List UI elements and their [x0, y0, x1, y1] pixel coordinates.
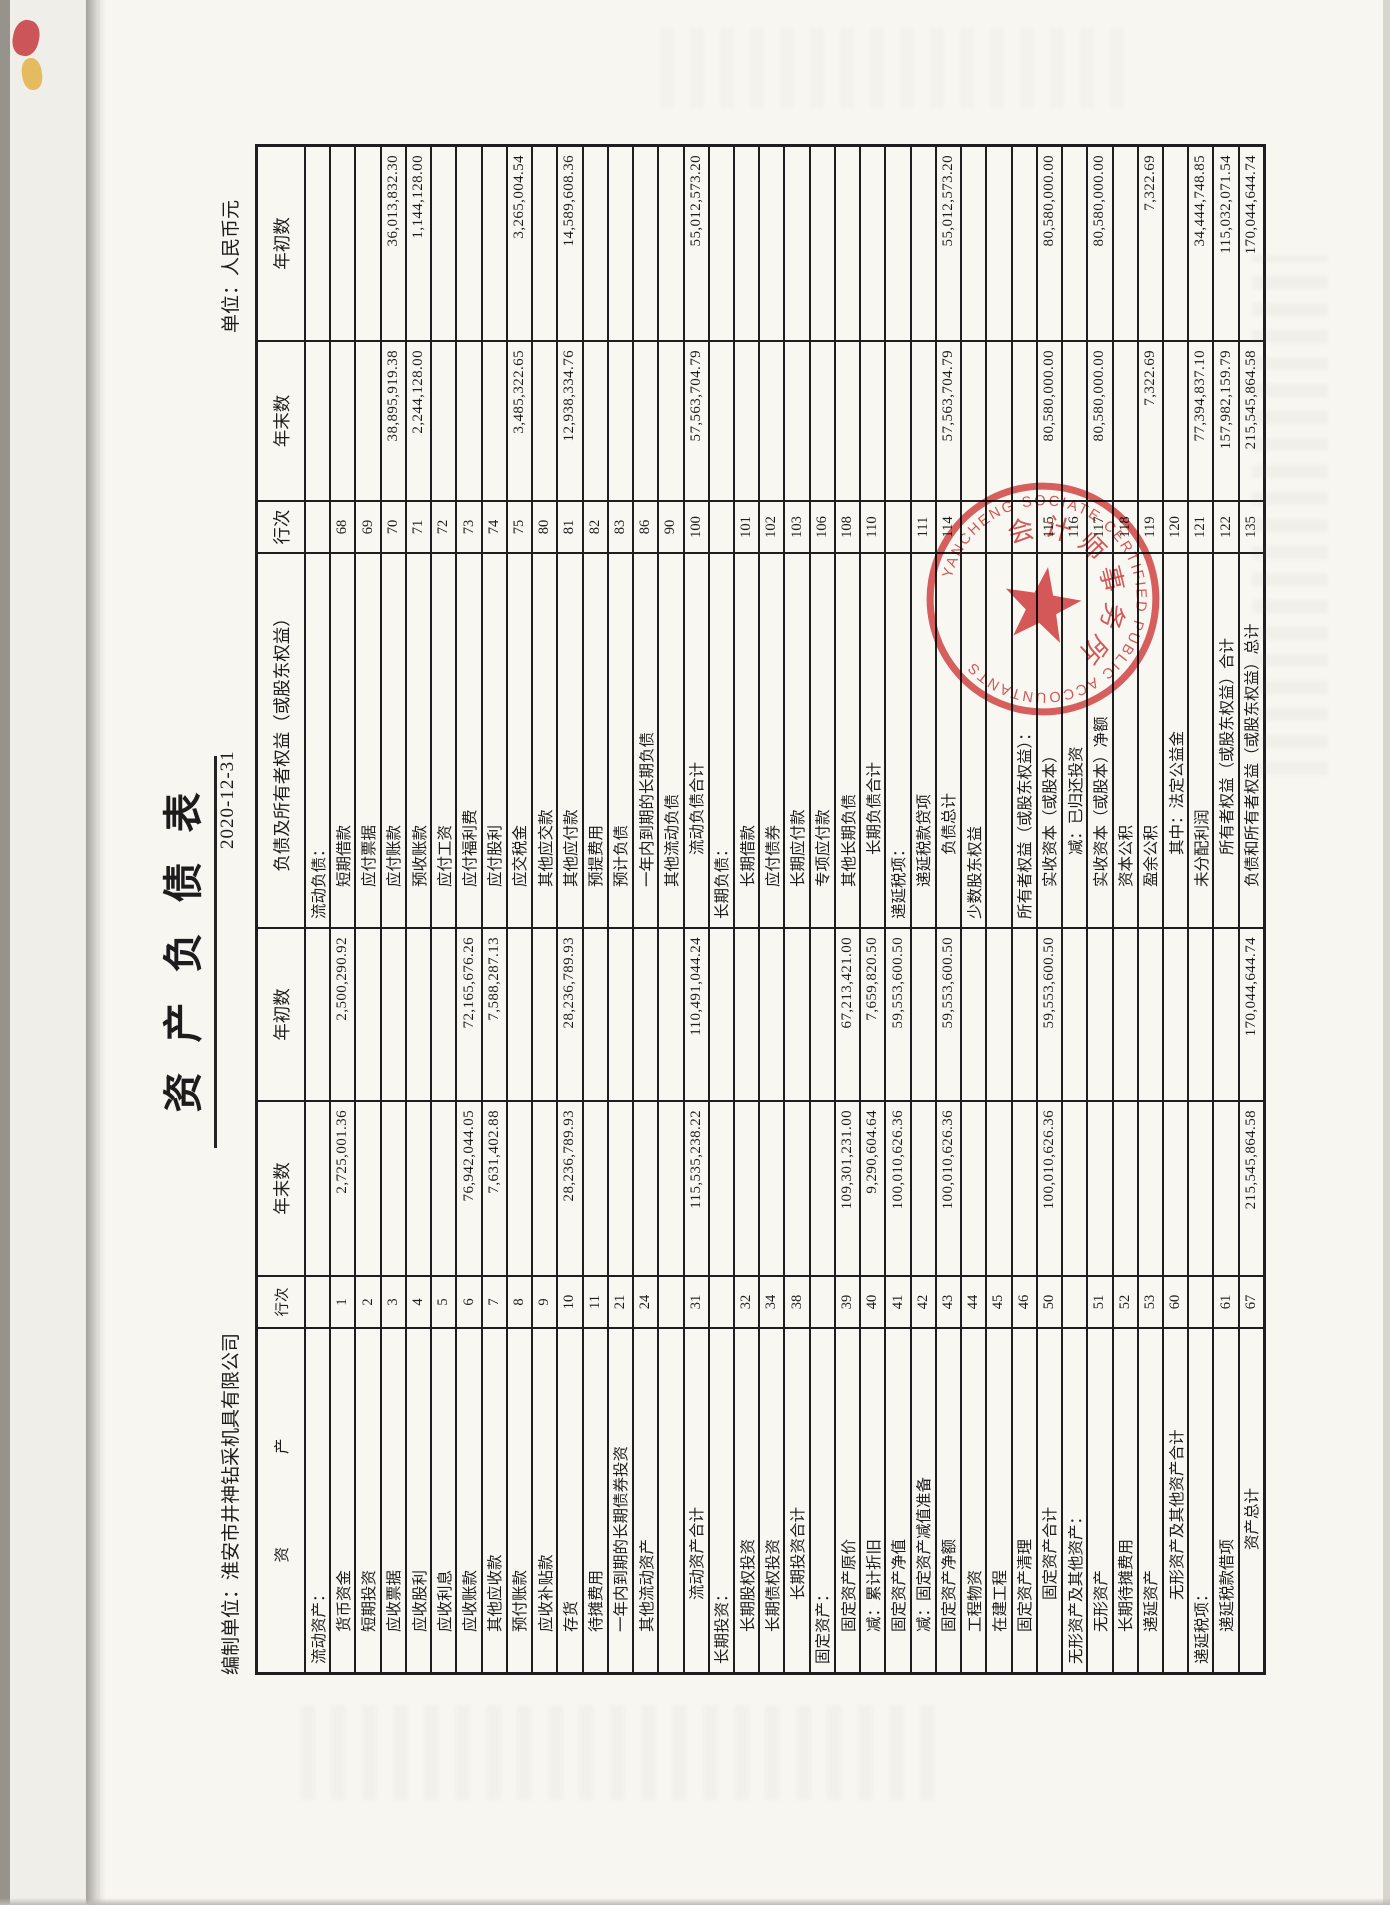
asset-line-no-cell: 11 — [584, 1275, 607, 1327]
asset-line-no-cell: 9 — [533, 1275, 556, 1327]
liability-name-cell: 应付账款 — [382, 552, 405, 927]
asset-year-begin-cell: 59,553,600.50 — [937, 927, 960, 1100]
asset-line-no-cell: 45 — [987, 1275, 1010, 1327]
asset-name-cell: 预付账款 — [508, 1327, 531, 1672]
asset-name-cell: 递延资产 — [1139, 1327, 1162, 1672]
asset-name-cell: 固定资产净额 — [937, 1327, 960, 1672]
liability-name-cell: 预提费用 — [584, 552, 607, 927]
asset-year-begin-cell — [1013, 927, 1036, 1100]
table-row: 递延税项：未分配利润12177,394,837.1034,444,748.85 — [1189, 147, 1214, 1672]
asset-line-no-cell: 8 — [508, 1275, 531, 1327]
liability-year-begin-cell: 7,322.69 — [1139, 147, 1162, 340]
liability-line-no-cell — [306, 500, 329, 552]
scan-edge-left — [0, 0, 10, 1905]
asset-year-end-cell — [760, 1100, 783, 1275]
liability-year-begin-cell — [533, 147, 556, 340]
fold-shadow — [86, 0, 106, 1905]
asset-year-end-cell: 100,010,626.36 — [886, 1100, 909, 1275]
asset-year-end-cell: 115,535,238.22 — [685, 1100, 708, 1275]
liability-name-cell: 长期负债合计 — [861, 552, 884, 927]
liability-name-cell: 流动负债合计 — [685, 552, 708, 927]
liability-name-cell: 应付票据 — [356, 552, 379, 927]
table-row: 应收账款676,942,044.0572,165,676.26应付福利费73 — [457, 147, 482, 1672]
liability-line-no-cell: 73 — [457, 500, 480, 552]
scanned-page: 资产负债表 编制单位：淮安市井神钻采机具有限公司 2020-12-31 单位：人… — [0, 0, 1390, 1905]
asset-name-cell: 固定资产： — [811, 1327, 834, 1672]
asset-line-no-cell: 24 — [634, 1275, 657, 1327]
asset-year-begin-cell: 7,659,820.50 — [861, 927, 884, 1100]
table-row: 短期投资2应付票据69 — [356, 147, 381, 1672]
asset-name-cell: 固定资产原价 — [836, 1327, 859, 1672]
liability-line-no-cell: 83 — [609, 500, 632, 552]
table-row: 一年内到期的长期债券投资21预计负债83 — [609, 147, 634, 1672]
asset-year-end-cell — [1088, 1100, 1111, 1275]
asset-year-end-cell: 215,545,864.58 — [1240, 1100, 1263, 1275]
header-liability: 负债及所有者权益（或股东权益） — [258, 552, 304, 927]
asset-year-end-cell: 109,301,231.00 — [836, 1100, 859, 1275]
liability-year-end-cell: 2,244,128.00 — [407, 340, 430, 500]
asset-year-begin-cell — [962, 927, 985, 1100]
liability-name-cell: 长期负债： — [710, 552, 733, 927]
liability-line-no-cell: 82 — [584, 500, 607, 552]
asset-line-no-cell — [811, 1275, 834, 1327]
asset-name-cell: 工程物资 — [962, 1327, 985, 1672]
asset-year-begin-cell — [659, 927, 682, 1100]
asset-name-cell: 长期股权投资 — [735, 1327, 758, 1672]
asset-line-no-cell: 10 — [558, 1275, 581, 1327]
liability-year-begin-cell: 34,444,748.85 — [1189, 147, 1212, 340]
asset-year-begin-cell: 72,165,676.26 — [457, 927, 480, 1100]
liability-year-end-cell: 38,895,919.38 — [382, 340, 405, 500]
asset-year-begin-cell: 67,213,421.00 — [836, 927, 859, 1100]
page-curl-margin — [10, 0, 88, 1905]
asset-year-end-cell — [407, 1100, 430, 1275]
asset-year-begin-cell — [584, 927, 607, 1100]
liability-name-cell: 专项应付款 — [811, 552, 834, 927]
table-row: 其他流动资产24一年内到期的长期负债86 — [634, 147, 659, 1672]
liability-year-begin-cell — [584, 147, 607, 340]
asset-year-begin-cell — [382, 927, 405, 1100]
liability-name-cell: 应付债券 — [760, 552, 783, 927]
liability-year-begin-cell: 55,012,573.20 — [937, 147, 960, 340]
liability-year-begin-cell — [1164, 147, 1187, 340]
asset-year-begin-cell — [1139, 927, 1162, 1100]
asset-year-begin-cell — [811, 927, 834, 1100]
asset-name-cell: 其他流动资产 — [634, 1327, 657, 1672]
liability-year-begin-cell: 1,144,128.00 — [407, 147, 430, 340]
liability-name-cell: 预计负债 — [609, 552, 632, 927]
liability-line-no-cell: 71 — [407, 500, 430, 552]
header-liability-year-begin: 年初数 — [258, 147, 304, 340]
seal-star-icon — [999, 561, 1086, 645]
table-row: 待摊费用11预提费用82 — [584, 147, 609, 1672]
asset-name-cell: 流动资产： — [306, 1327, 329, 1672]
table-row: 减：固定资产减值准备42递延税款贷项111 — [912, 147, 937, 1672]
liability-year-end-cell: 57,563,704.79 — [685, 340, 708, 500]
asset-line-no-cell: 31 — [685, 1275, 708, 1327]
liability-name-cell: 负债和所有者权益（或股东权益）总计 — [1240, 552, 1263, 927]
table-row: 固定资产原价39109,301,231.0067,213,421.00其他长期负… — [836, 147, 861, 1672]
asset-year-end-cell — [811, 1100, 834, 1275]
asset-year-begin-cell — [407, 927, 430, 1100]
liability-year-end-cell — [609, 340, 632, 500]
liability-year-end-cell — [886, 340, 909, 500]
liability-year-end-cell — [432, 340, 455, 500]
asset-year-begin-cell — [1088, 927, 1111, 1100]
liability-line-no-cell: 80 — [533, 500, 556, 552]
liability-year-begin-cell — [306, 147, 329, 340]
liability-year-end-cell: 3,485,322.65 — [508, 340, 531, 500]
asset-year-begin-cell — [609, 927, 632, 1100]
table-row: 应收利息5应付工资72 — [432, 147, 457, 1672]
currency-unit: 单位：人民币元 — [216, 200, 243, 333]
asset-year-begin-cell — [1189, 927, 1212, 1100]
liability-line-no-cell: 110 — [861, 500, 884, 552]
liability-year-begin-cell: 55,012,573.20 — [685, 147, 708, 340]
asset-year-begin-cell — [735, 927, 758, 1100]
asset-line-no-cell — [1189, 1275, 1212, 1327]
liability-name-cell: 流动负债： — [306, 552, 329, 927]
liability-year-begin-cell — [836, 147, 859, 340]
header-asset-line-no: 行次 — [258, 1275, 304, 1327]
asset-year-begin-cell — [634, 927, 657, 1100]
asset-name-cell: 一年内到期的长期债券投资 — [609, 1327, 632, 1672]
liability-name-cell: 长期应付款 — [785, 552, 808, 927]
asset-line-no-cell: 46 — [1013, 1275, 1036, 1327]
asset-name-cell: 应收账款 — [457, 1327, 480, 1672]
asset-year-begin-cell — [710, 927, 733, 1100]
asset-year-end-cell: 100,010,626.36 — [937, 1100, 960, 1275]
asset-year-begin-cell — [760, 927, 783, 1100]
asset-name-cell: 固定资产清理 — [1013, 1327, 1036, 1672]
asset-year-end-cell — [962, 1100, 985, 1275]
asset-line-no-cell: 43 — [937, 1275, 960, 1327]
table-row: 长期投资：长期负债： — [710, 147, 735, 1672]
table-row: 工程物资44少数股东权益 — [962, 147, 987, 1672]
scan-edge-right — [1383, 0, 1390, 1905]
liability-year-begin-cell — [785, 147, 808, 340]
asset-year-begin-cell — [912, 927, 935, 1100]
liability-name-cell: 其他流动负债 — [659, 552, 682, 927]
balance-sheet-table: 资 产 行次 年末数 年初数 负债及所有者权益（或股东权益） 行次 年末数 年初… — [255, 144, 1266, 1675]
liability-year-end-cell — [1114, 340, 1137, 500]
table-row: 应收股利4预收账款712,244,128.001,144,128.00 — [407, 147, 432, 1672]
asset-year-end-cell: 2,725,001.36 — [331, 1100, 354, 1275]
liability-year-begin-cell: 36,013,832.30 — [382, 147, 405, 340]
asset-year-begin-cell: 2,500,290.92 — [331, 927, 354, 1100]
asset-year-end-cell — [1214, 1100, 1237, 1275]
liability-year-end-cell — [634, 340, 657, 500]
header-liability-year-end: 年末数 — [258, 340, 304, 500]
asset-name-cell: 流动资产合计 — [685, 1327, 708, 1672]
liability-year-begin-cell — [962, 147, 985, 340]
liability-year-end-cell — [584, 340, 607, 500]
liability-year-end-cell: 77,394,837.10 — [1189, 340, 1212, 500]
table-row: 其他应收款77,631,402.887,588,287.13应付股利74 — [483, 147, 508, 1672]
asset-year-begin-cell — [356, 927, 379, 1100]
asset-year-begin-cell — [987, 927, 1010, 1100]
liability-line-no-cell: 135 — [1240, 500, 1263, 552]
table-row: 无形资产及其他资产合计60其中：法定公益金120 — [1164, 147, 1189, 1672]
liability-year-end-cell — [735, 340, 758, 500]
liability-year-begin-cell — [659, 147, 682, 340]
asset-line-no-cell: 34 — [760, 1275, 783, 1327]
balance-sheet-document: 资产负债表 编制单位：淮安市井神钻采机具有限公司 2020-12-31 单位：人… — [85, 0, 1390, 1905]
liability-year-begin-cell — [710, 147, 733, 340]
header-asset: 资 产 — [258, 1327, 304, 1672]
asset-line-no-cell: 40 — [861, 1275, 884, 1327]
asset-line-no-cell: 1 — [331, 1275, 354, 1327]
asset-year-begin-cell — [508, 927, 531, 1100]
table-row: 无形资产51实收资本（或股本）净额11780,580,000.0080,580,… — [1088, 147, 1113, 1672]
table-row: 长期待摊费用52资本公积118 — [1114, 147, 1139, 1672]
liability-year-begin-cell — [886, 147, 909, 340]
asset-name-cell: 应收利息 — [432, 1327, 455, 1672]
asset-name-cell: 货币资金 — [331, 1327, 354, 1672]
header-asset-year-end: 年末数 — [258, 1100, 304, 1275]
asset-year-end-cell — [356, 1100, 379, 1275]
asset-year-begin-cell: 170,044,644.74 — [1240, 927, 1263, 1100]
table-row: 固定资产净值41100,010,626.3659,553,600.50递延税项： — [886, 147, 911, 1672]
asset-name-cell: 长期待摊费用 — [1114, 1327, 1137, 1672]
asset-line-no-cell: 41 — [886, 1275, 909, 1327]
asset-year-end-cell — [1189, 1100, 1212, 1275]
asset-line-no-cell: 38 — [785, 1275, 808, 1327]
asset-year-end-cell — [1139, 1100, 1162, 1275]
table-row: 固定资产清理46所有者权益（或股东权益）： — [1013, 147, 1038, 1672]
liability-name-cell: 应付工资 — [432, 552, 455, 927]
liability-line-no-cell: 102 — [760, 500, 783, 552]
liability-year-begin-cell — [861, 147, 884, 340]
liability-name-cell: 递延税项： — [886, 552, 909, 927]
prepared-by: 编制单位：淮安市井神钻采机具有限公司 — [216, 1333, 243, 1675]
asset-line-no-cell: 67 — [1240, 1275, 1263, 1327]
asset-name-cell: 短期投资 — [356, 1327, 379, 1672]
table-row: 流动资产：流动负债： — [306, 147, 331, 1672]
liability-name-cell: 短期借款 — [331, 552, 354, 927]
asset-line-no-cell: 5 — [432, 1275, 455, 1327]
liability-year-end-cell — [483, 340, 506, 500]
liability-year-begin-cell: 80,580,000.00 — [1088, 147, 1111, 340]
asset-line-no-cell: 53 — [1139, 1275, 1162, 1327]
liability-year-end-cell: 157,982,159.79 — [1214, 340, 1237, 500]
table-row: 固定资产净额43100,010,626.3659,553,600.50负债总计1… — [937, 147, 962, 1672]
asset-year-end-cell — [735, 1100, 758, 1275]
table-row: 长期股权投资32长期借款101 — [735, 147, 760, 1672]
asset-line-no-cell: 42 — [912, 1275, 935, 1327]
liability-line-no-cell: 69 — [356, 500, 379, 552]
liability-line-no-cell: 122 — [1214, 500, 1237, 552]
asset-year-end-cell: 9,290,604.64 — [861, 1100, 884, 1275]
liability-year-end-cell: 12,938,334.76 — [558, 340, 581, 500]
asset-year-begin-cell — [785, 927, 808, 1100]
liability-name-cell: 所有者权益（或股东权益）合计 — [1214, 552, 1237, 927]
asset-year-end-cell: 76,942,044.05 — [457, 1100, 480, 1275]
prepared-by-label: 编制单位： — [221, 1580, 242, 1675]
asset-year-begin-cell: 7,588,287.13 — [483, 927, 506, 1100]
liability-line-no-cell: 86 — [634, 500, 657, 552]
asset-year-end-cell — [634, 1100, 657, 1275]
asset-line-no-cell: 3 — [382, 1275, 405, 1327]
table-row: 在建工程45 — [987, 147, 1012, 1672]
liability-year-begin-cell: 80,580,000.00 — [1038, 147, 1061, 340]
asset-year-end-cell — [912, 1100, 935, 1275]
liability-year-begin-cell: 170,044,644.74 — [1240, 147, 1263, 340]
liability-line-no-cell — [710, 500, 733, 552]
page-title-text: 资产负债表 — [151, 757, 217, 1149]
liability-year-end-cell — [785, 340, 808, 500]
liability-line-no-cell: 75 — [508, 500, 531, 552]
table-row: 流动资产合计31115,535,238.22110,491,044.24流动负债… — [685, 147, 710, 1672]
asset-name-cell: 长期债权投资 — [760, 1327, 783, 1672]
liability-year-end-cell — [659, 340, 682, 500]
asset-year-begin-cell — [306, 927, 329, 1100]
liability-line-no-cell: 100 — [685, 500, 708, 552]
liability-year-begin-cell — [483, 147, 506, 340]
asset-line-no-cell: 6 — [457, 1275, 480, 1327]
asset-year-end-cell — [533, 1100, 556, 1275]
liability-line-no-cell: 81 — [558, 500, 581, 552]
asset-year-end-cell — [1013, 1100, 1036, 1275]
liability-line-no-cell: 106 — [811, 500, 834, 552]
asset-name-cell: 递延税项： — [1189, 1327, 1212, 1672]
liability-year-begin-cell — [331, 147, 354, 340]
asset-year-end-cell — [1164, 1100, 1187, 1275]
asset-year-end-cell — [432, 1100, 455, 1275]
table-row: 货币资金12,725,001.362,500,290.92短期借款68 — [331, 147, 356, 1672]
asset-line-no-cell: 51 — [1088, 1275, 1111, 1327]
liability-line-no-cell: 90 — [659, 500, 682, 552]
table-row: 资产总计67215,545,864.58170,044,644.74负债和所有者… — [1240, 147, 1263, 1672]
asset-year-end-cell — [710, 1100, 733, 1275]
liability-line-no-cell: 103 — [785, 500, 808, 552]
liability-year-begin-cell — [1063, 147, 1086, 340]
asset-line-no-cell: 44 — [962, 1275, 985, 1327]
asset-year-end-cell — [609, 1100, 632, 1275]
liability-line-no-cell: 68 — [331, 500, 354, 552]
liability-year-end-cell — [331, 340, 354, 500]
liability-year-end-cell — [811, 340, 834, 500]
liability-year-begin-cell: 14,589,608.36 — [558, 147, 581, 340]
liability-line-no-cell: 74 — [483, 500, 506, 552]
asset-line-no-cell — [306, 1275, 329, 1327]
asset-year-begin-cell — [1063, 927, 1086, 1100]
asset-line-no-cell: 2 — [356, 1275, 379, 1327]
table-row: 预付账款8应交税金753,485,322.653,265,004.54 — [508, 147, 533, 1672]
liability-year-begin-cell — [432, 147, 455, 340]
liability-line-no-cell: 101 — [735, 500, 758, 552]
asset-year-begin-cell: 59,553,600.50 — [1038, 927, 1061, 1100]
asset-line-no-cell: 52 — [1114, 1275, 1137, 1327]
asset-year-end-cell — [306, 1100, 329, 1275]
liability-line-no-cell: 108 — [836, 500, 859, 552]
asset-year-begin-cell: 28,236,789.93 — [558, 927, 581, 1100]
header-liability-line-no: 行次 — [258, 500, 304, 552]
asset-name-cell: 存货 — [558, 1327, 581, 1672]
liability-year-begin-cell — [457, 147, 480, 340]
liability-year-end-cell — [1164, 340, 1187, 500]
liability-year-begin-cell — [1114, 147, 1137, 340]
scan-edge-bottom — [0, 1898, 1390, 1905]
asset-year-begin-cell — [1164, 927, 1187, 1100]
liability-name-cell: 未分配利润 — [1189, 552, 1212, 927]
asset-name-cell: 长期投资： — [710, 1327, 733, 1672]
company-name: 淮安市井神钻采机具有限公司 — [221, 1333, 242, 1580]
asset-year-begin-cell — [533, 927, 556, 1100]
asset-line-no-cell: 21 — [609, 1275, 632, 1327]
liability-name-cell: 应付福利费 — [457, 552, 480, 927]
page-title: 资产负债表 — [151, 0, 217, 1905]
asset-line-no-cell: 32 — [735, 1275, 758, 1327]
asset-name-cell: 在建工程 — [987, 1327, 1010, 1672]
asset-year-end-cell — [785, 1100, 808, 1275]
asset-year-begin-cell — [1114, 927, 1137, 1100]
liability-year-begin-cell — [811, 147, 834, 340]
liability-year-begin-cell — [1013, 147, 1036, 340]
asset-year-end-cell — [1114, 1100, 1137, 1275]
liability-year-end-cell — [836, 340, 859, 500]
asset-line-no-cell — [659, 1275, 682, 1327]
asset-name-cell: 递延税款借项 — [1214, 1327, 1237, 1672]
asset-year-end-cell: 7,631,402.88 — [483, 1100, 506, 1275]
asset-name-cell: 应收补贴款 — [533, 1327, 556, 1672]
liability-year-begin-cell — [987, 147, 1010, 340]
liability-year-end-cell — [457, 340, 480, 500]
liability-name-cell: 其他长期负债 — [836, 552, 859, 927]
asset-line-no-cell: 39 — [836, 1275, 859, 1327]
liability-name-cell: 预收账款 — [407, 552, 430, 927]
asset-year-end-cell — [987, 1100, 1010, 1275]
liability-name-cell: 其他应交款 — [533, 552, 556, 927]
liability-year-begin-cell — [912, 147, 935, 340]
liability-year-end-cell — [710, 340, 733, 500]
asset-year-end-cell — [382, 1100, 405, 1275]
asset-year-begin-cell: 59,553,600.50 — [886, 927, 909, 1100]
liability-year-begin-cell — [609, 147, 632, 340]
asset-name-cell: 其他应收款 — [483, 1327, 506, 1672]
asset-line-no-cell: 61 — [1214, 1275, 1237, 1327]
liability-line-no-cell — [886, 500, 909, 552]
asset-name-cell: 固定资产合计 — [1038, 1327, 1061, 1672]
table-row: 固定资产合计50100,010,626.3659,553,600.50实收资本（… — [1038, 147, 1063, 1672]
table-row: 固定资产：专项应付款106 — [811, 147, 836, 1672]
liability-year-end-cell — [533, 340, 556, 500]
asset-name-cell — [659, 1327, 682, 1672]
liability-name-cell: 长期借款 — [735, 552, 758, 927]
liability-year-end-cell: 7,322.69 — [1139, 340, 1162, 500]
table-row: 递延资产53盈余公积1197,322.697,322.69 — [1139, 147, 1164, 1672]
asset-year-end-cell — [1063, 1100, 1086, 1275]
asset-year-end-cell — [508, 1100, 531, 1275]
liability-year-begin-cell — [735, 147, 758, 340]
asset-year-end-cell — [584, 1100, 607, 1275]
liability-line-no-cell: 70 — [382, 500, 405, 552]
liability-year-end-cell: 215,545,864.58 — [1240, 340, 1263, 500]
liability-year-begin-cell: 115,032,071.54 — [1214, 147, 1237, 340]
liability-year-end-cell — [356, 340, 379, 500]
asset-line-no-cell: 60 — [1164, 1275, 1187, 1327]
header-asset-year-begin: 年初数 — [258, 927, 304, 1100]
table-row: 存货1028,236,789.9328,236,789.93其他应付款8112,… — [558, 147, 583, 1672]
liability-year-begin-cell — [356, 147, 379, 340]
liability-year-end-cell — [861, 340, 884, 500]
asset-line-no-cell — [710, 1275, 733, 1327]
asset-year-end-cell — [659, 1100, 682, 1275]
table-row: 长期债权投资34应付债券102 — [760, 147, 785, 1672]
asset-name-cell: 资产总计 — [1240, 1327, 1263, 1672]
liability-line-no-cell: 121 — [1189, 500, 1212, 552]
asset-year-begin-cell — [432, 927, 455, 1100]
